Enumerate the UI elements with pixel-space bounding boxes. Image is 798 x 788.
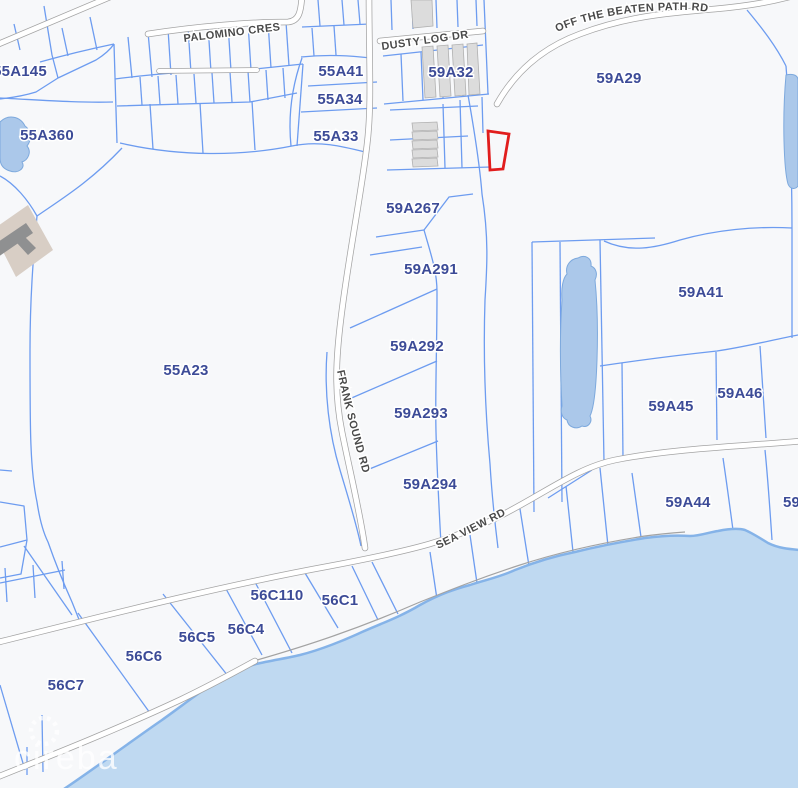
parcel-label-59A44: 59A44	[665, 494, 711, 511]
parcel-label-59A41: 59A41	[678, 284, 723, 301]
map-viewport[interactable]: 55A145 55A360 55A41 55A34 55A33 59A32 59…	[0, 0, 798, 788]
parcel-label-59A292: 59A292	[390, 338, 444, 355]
parcel-label-56C4: 56C4	[228, 621, 265, 638]
parcel-label-56C1: 56C1	[322, 592, 359, 609]
parcel-label-59A291: 59A291	[404, 261, 458, 278]
parcel-label-55A41: 55A41	[318, 63, 363, 80]
parcel-label-59A293: 59A293	[394, 405, 448, 422]
parcel-label-59A29: 59A29	[596, 70, 641, 87]
parcel-label-55A33: 55A33	[313, 128, 358, 145]
watermark-text: cireba	[14, 739, 119, 777]
pond-east-edge	[784, 74, 798, 188]
parcel-label-59A46: 59A46	[717, 385, 762, 402]
parcel-label-56C110: 56C110	[251, 587, 304, 604]
parcel-label-55A360: 55A360	[20, 127, 74, 144]
parcel-label-56C6: 56C6	[126, 648, 163, 665]
parcel-label-59A294: 59A294	[403, 476, 457, 493]
parcel-label-55A145: 55A145	[0, 63, 47, 80]
parcel-label-59A-clipped: 59A	[783, 494, 798, 511]
parcel-label-55A23: 55A23	[163, 362, 208, 379]
parcel-label-56C7: 56C7	[48, 677, 85, 694]
parcel-label-55A34: 55A34	[317, 91, 363, 108]
parcel-label-56C5: 56C5	[179, 629, 216, 646]
parcel-label-59A32: 59A32	[428, 64, 473, 81]
parcel-map-canvas[interactable]: 55A145 55A360 55A41 55A34 55A33 59A32 59…	[0, 0, 798, 788]
parcel-label-59A267: 59A267	[386, 200, 440, 217]
pond-central	[561, 256, 598, 427]
parcel-label-59A45: 59A45	[648, 398, 693, 415]
